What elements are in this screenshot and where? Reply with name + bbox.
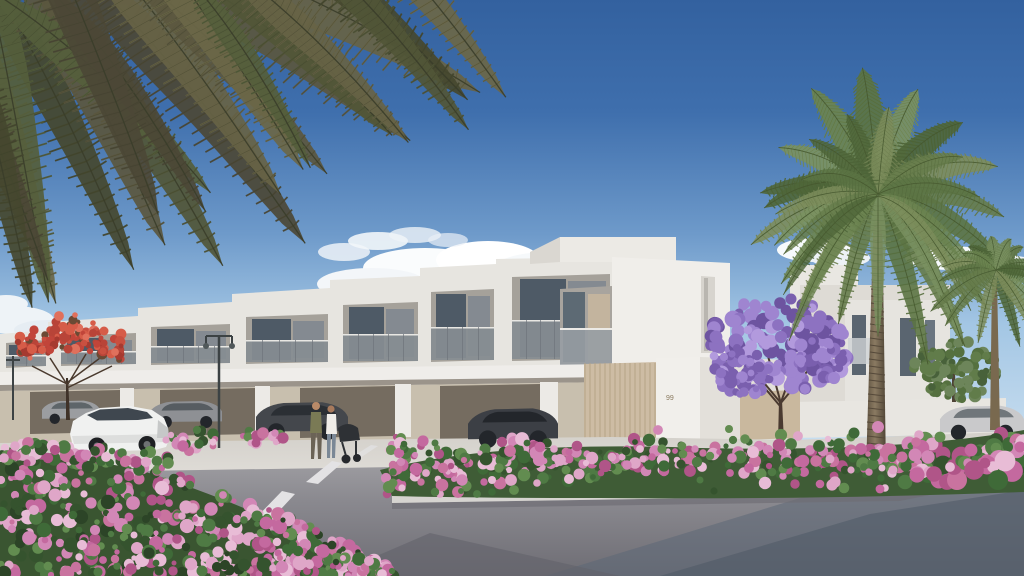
svg-text:99: 99 <box>666 395 674 402</box>
